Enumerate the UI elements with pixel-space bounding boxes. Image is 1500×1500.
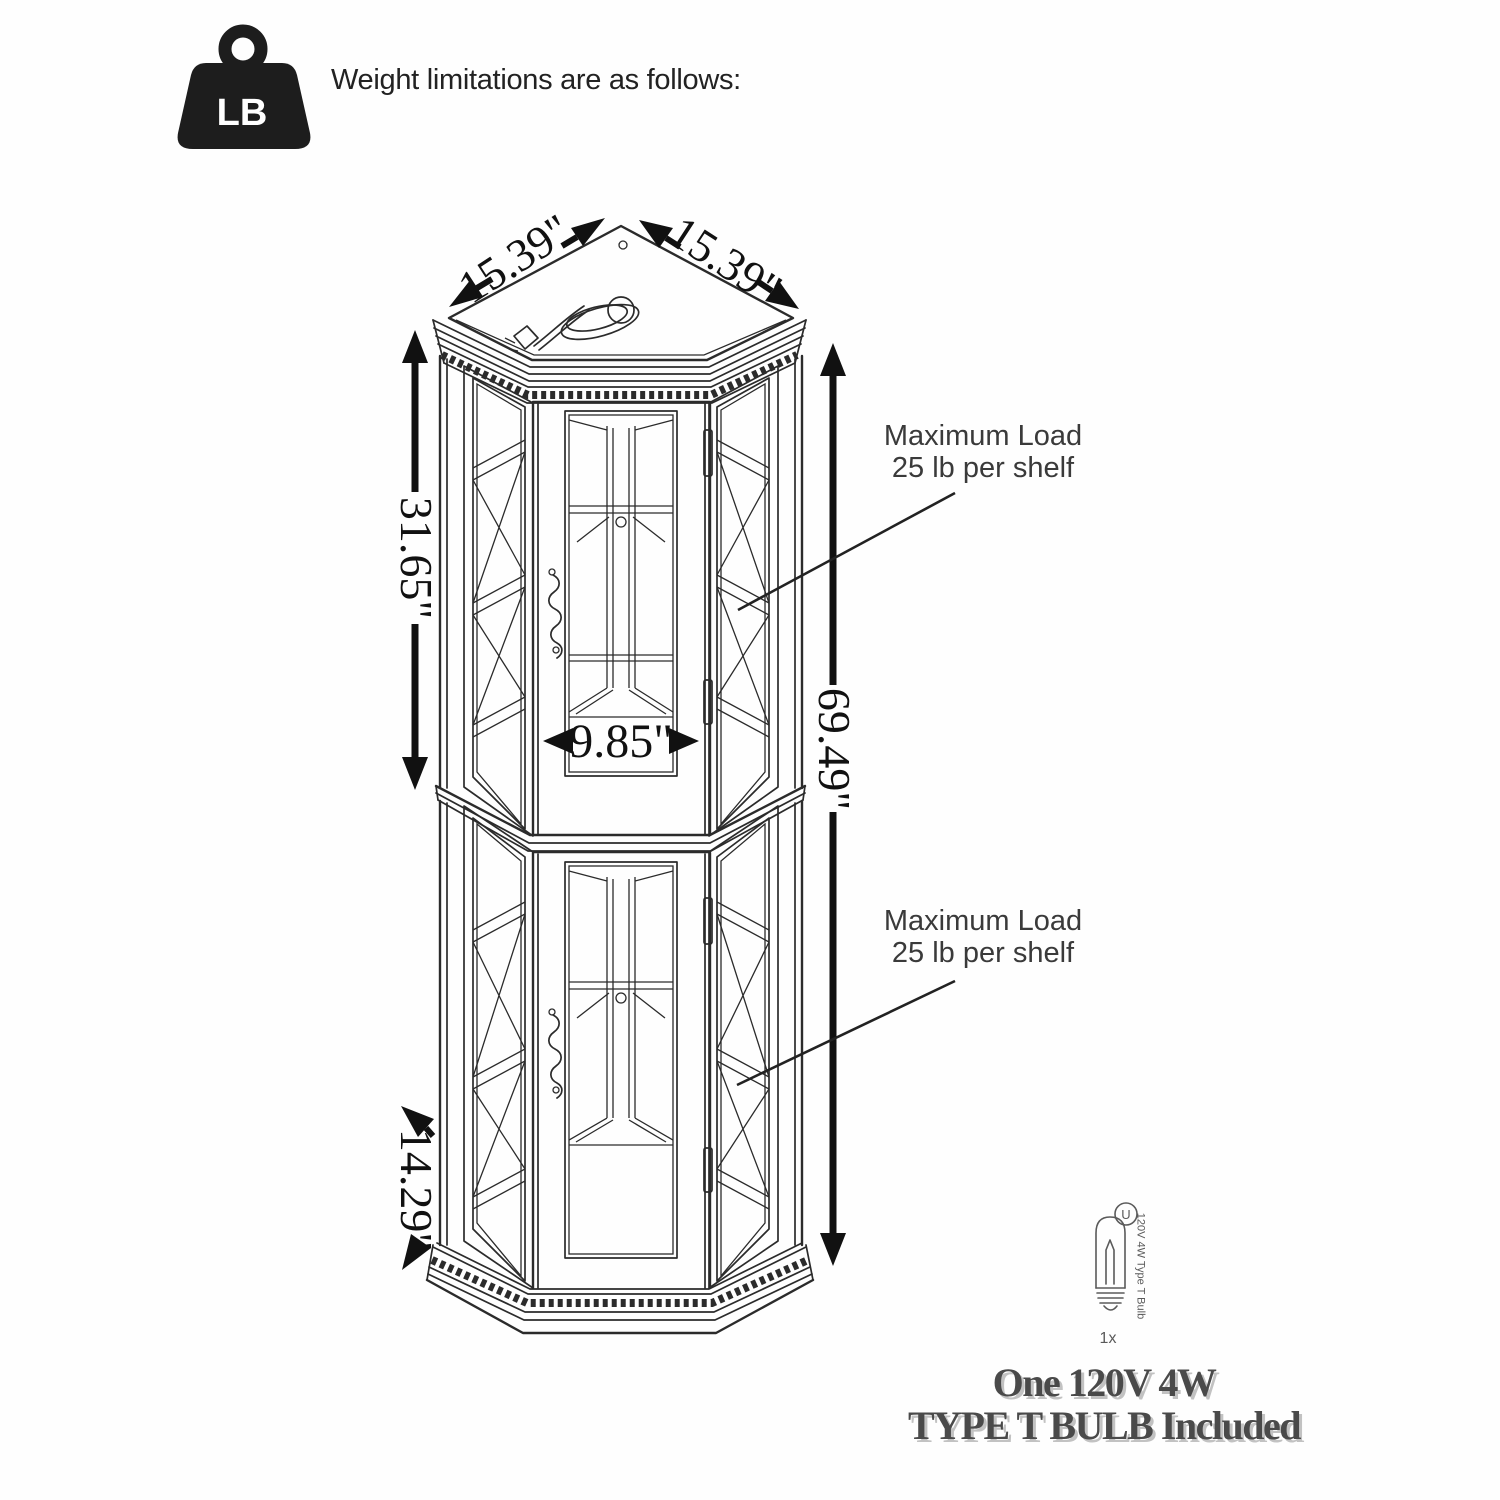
bulb-quantity-label: 1x	[1100, 1330, 1117, 1347]
lower-left-shelf-lines	[473, 902, 525, 1209]
lower-left-glass-panel	[464, 806, 533, 1288]
lower-right-stile	[795, 801, 802, 1245]
note-upper-leader-line	[738, 493, 955, 610]
dim-upper-height: 31.65"	[391, 330, 442, 790]
dim-base-depth: 14.29"	[391, 1106, 442, 1270]
dim-label-upper-height: 31.65"	[391, 497, 442, 619]
lower-door	[533, 852, 712, 1288]
note-upper-load-line2: 25 lb per shelf	[892, 452, 1075, 484]
dim-label-interior-width: 9.85"	[569, 715, 673, 768]
lower-door-handle-icon	[549, 1009, 562, 1098]
note-upper-load-line1: Maximum Load	[884, 420, 1082, 452]
footer-note: One 120V 4W TYPE T BULB Included	[824, 1362, 1384, 1448]
dim-top-left-edge: 15.39"	[449, 204, 605, 313]
note-upper-load: Maximum Load 25 lb per shelf	[738, 420, 1082, 610]
dim-label-top-left: 15.39"	[449, 204, 579, 313]
upper-right-stile	[795, 356, 802, 788]
power-cord-icon	[505, 297, 642, 351]
lower-section	[440, 801, 802, 1288]
base-dentil-trim	[432, 1260, 808, 1303]
certification-mark-label: U	[1121, 1207, 1130, 1222]
cabinet-diagram: 15.39" 15.39" 31.65" 69.49"	[0, 0, 1500, 1500]
upper-door-handle-icon	[549, 569, 562, 658]
dim-label-top-right: 15.39"	[661, 206, 791, 315]
dim-interior-width: 9.85"	[543, 715, 699, 768]
lower-right-glass-panel	[709, 806, 778, 1288]
bulb-icon: U 120V 4W Type T Bulb 1x	[1096, 1203, 1147, 1347]
dim-label-base-depth: 14.29"	[391, 1129, 442, 1251]
upper-interior	[569, 420, 673, 717]
lower-interior	[569, 871, 673, 1145]
upper-right-shelf-lines	[717, 440, 769, 737]
dim-top-right-edge: 15.39"	[639, 206, 799, 315]
dim-total-height: 69.49"	[809, 343, 860, 1266]
footer-line2: TYPE T BULB Included	[824, 1405, 1384, 1448]
upper-door	[533, 402, 712, 834]
upper-right-glass-panel	[709, 366, 778, 836]
footer-line1: One 120V 4W	[824, 1362, 1384, 1405]
bulb-spec-label: 120V 4W Type T Bulb	[1135, 1213, 1147, 1319]
diagram-canvas: LB Weight limitations are as follows:	[0, 0, 1500, 1500]
note-lower-load-line2: 25 lb per shelf	[892, 937, 1075, 969]
dim-label-total-height: 69.49"	[809, 688, 860, 810]
lower-right-shelf-lines	[717, 902, 769, 1209]
upper-left-shelf-lines	[473, 440, 525, 737]
note-lower-load-line1: Maximum Load	[884, 905, 1082, 937]
upper-left-glass-panel	[464, 366, 533, 836]
note-lower-load: Maximum Load 25 lb per shelf	[737, 905, 1082, 1085]
